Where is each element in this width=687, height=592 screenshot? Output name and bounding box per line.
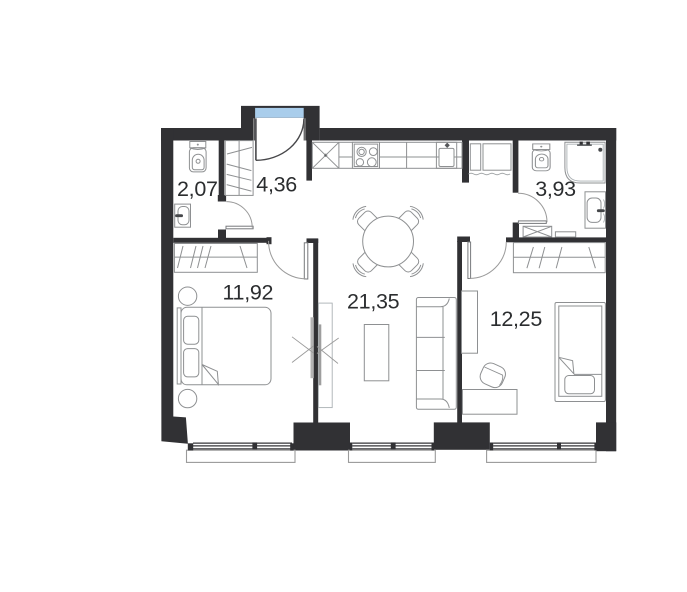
svg-text:3,93: 3,93 xyxy=(535,177,576,201)
svg-text:21,35: 21,35 xyxy=(347,289,400,313)
svg-text:2,07: 2,07 xyxy=(177,177,218,201)
svg-text:4,36: 4,36 xyxy=(256,173,297,197)
svg-text:12,25: 12,25 xyxy=(490,307,543,331)
svg-text:11,92: 11,92 xyxy=(223,280,274,304)
